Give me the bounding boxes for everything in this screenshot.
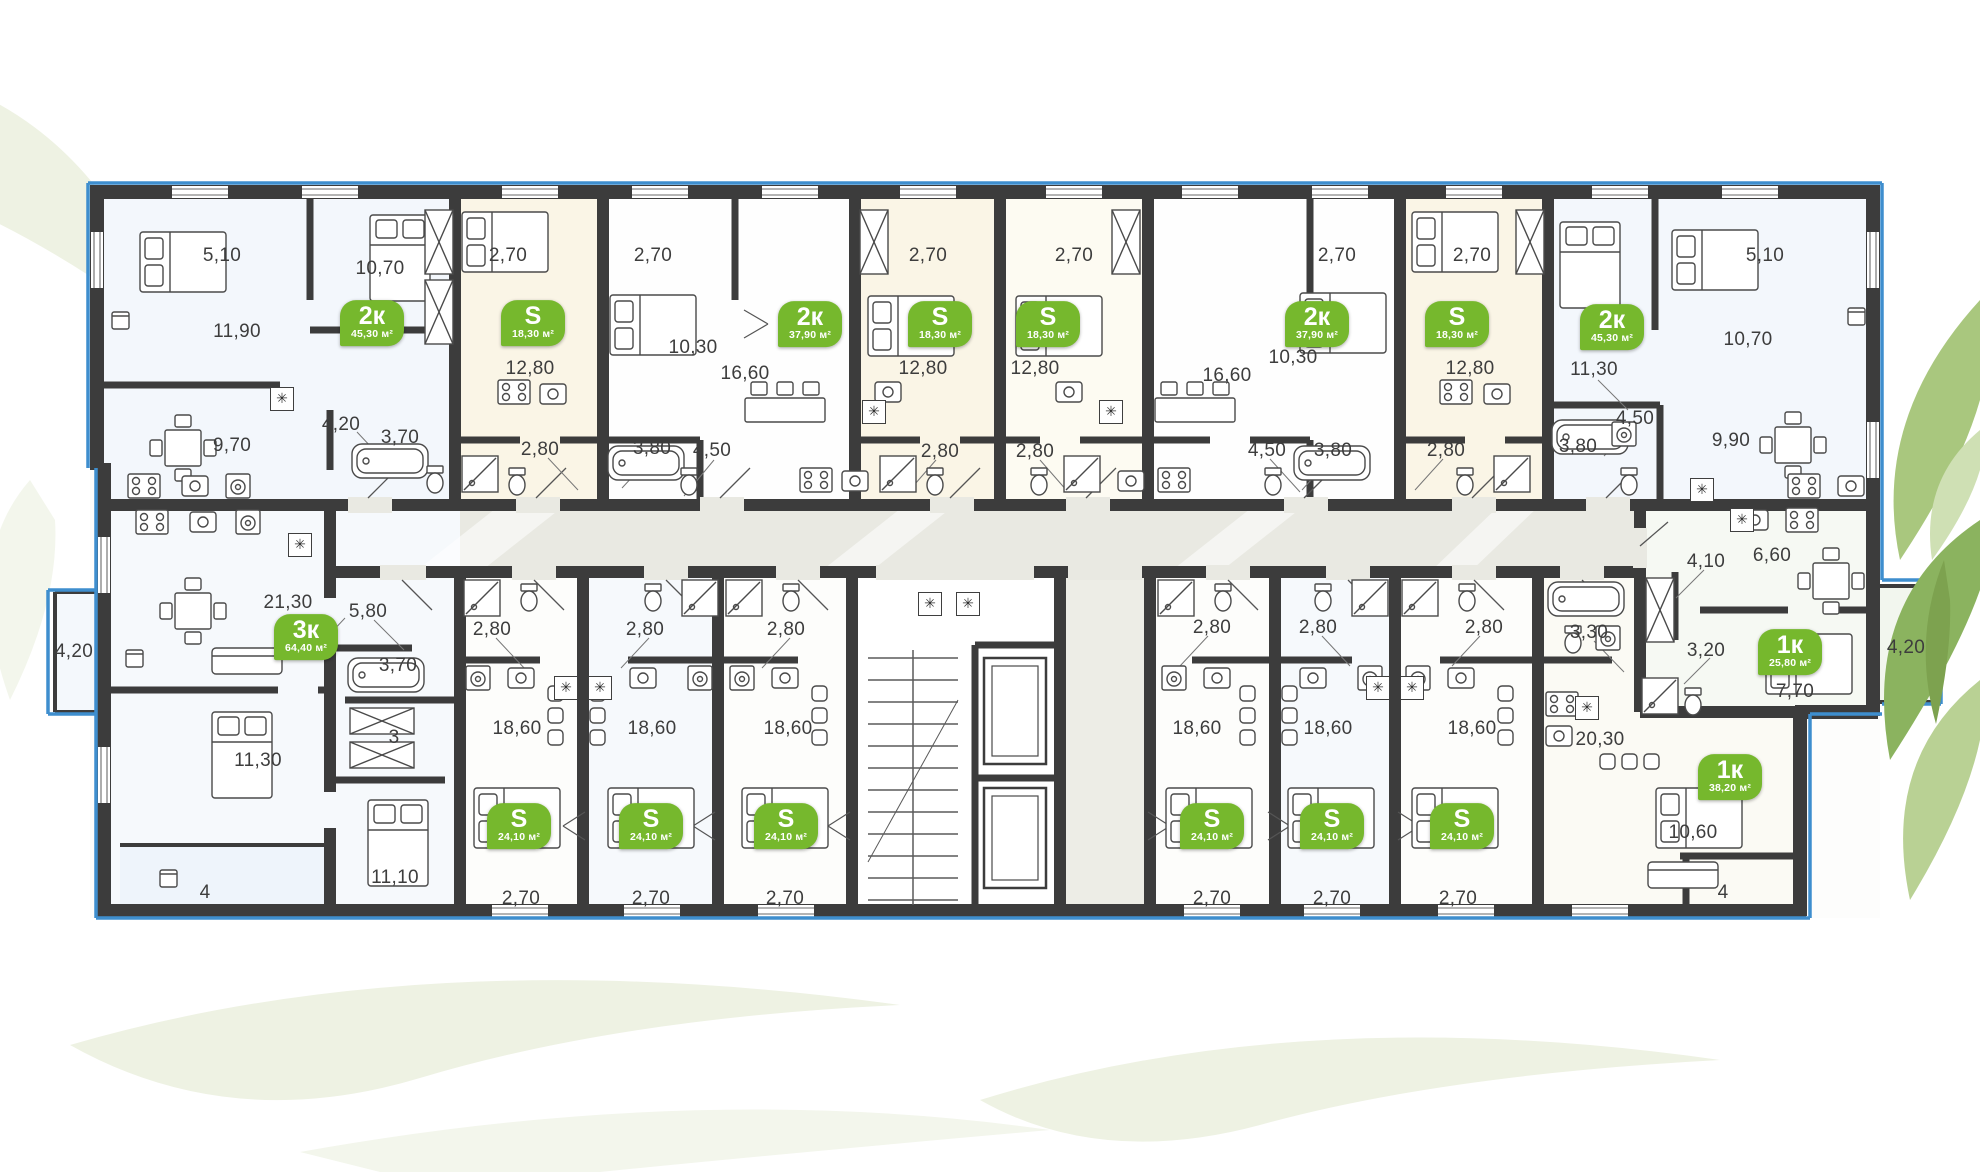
apartment-badge[interactable]: S18,30 м² <box>501 300 565 346</box>
apartment-badge[interactable]: S18,30 м² <box>908 301 972 347</box>
dimension-label: 2,80 <box>1016 441 1054 463</box>
dimension-label: 4,20 <box>322 414 360 436</box>
vent-icon: ✳ <box>588 676 612 700</box>
dimension-label: 3,20 <box>1687 640 1725 662</box>
apartment-area: 37,90 м² <box>1294 330 1340 342</box>
dimension-label: 3,30 <box>1570 622 1608 644</box>
dimension-label: 9,70 <box>213 435 251 457</box>
apartment-area: 24,10 м² <box>1439 832 1485 844</box>
dimension-label: 2,70 <box>1313 888 1351 910</box>
dimension-label: 2,80 <box>767 619 805 641</box>
apartment-type: 1к <box>1707 757 1753 783</box>
apartment-badge[interactable]: 2к45,30 м² <box>1580 304 1644 350</box>
apartment-area: 24,10 м² <box>1309 832 1355 844</box>
dimension-label: 3,80 <box>1314 440 1352 462</box>
dimension-label: 10,30 <box>668 337 717 359</box>
apartment-badge[interactable]: S18,30 м² <box>1016 301 1080 347</box>
apartment-badge[interactable]: 2к37,90 м² <box>778 301 842 347</box>
dimension-label: 2,70 <box>1318 245 1356 267</box>
apartment-badge[interactable]: 2к45,30 м² <box>340 300 404 346</box>
dimension-label: 2,80 <box>521 439 559 461</box>
apartment-type: S <box>763 806 809 832</box>
apartment-type: S <box>917 304 963 330</box>
dimension-label: 18,60 <box>1303 718 1352 740</box>
dimension-label: 2,70 <box>632 888 670 910</box>
apartment-area: 18,30 м² <box>510 329 556 341</box>
dimension-label: 12,80 <box>898 358 947 380</box>
apartment-area: 18,30 м² <box>1025 330 1071 342</box>
plan-labels: 5,1010,7011,909,704,203,702,7012,802,802… <box>0 0 1980 1172</box>
dimension-label: 4,50 <box>1616 408 1654 430</box>
apartment-type: S <box>1434 304 1480 330</box>
dimension-label: 9,90 <box>1712 430 1750 452</box>
dimension-label: 2,70 <box>1055 245 1093 267</box>
apartment-area: 24,10 м² <box>1189 832 1235 844</box>
dimension-label: 18,60 <box>1172 718 1221 740</box>
apartment-type: S <box>496 806 542 832</box>
dimension-label: 11,30 <box>1570 359 1618 381</box>
apartment-type: S <box>1025 304 1071 330</box>
apartment-type: 3к <box>283 617 329 643</box>
dimension-label: 5,10 <box>203 245 241 267</box>
apartment-area: 25,80 м² <box>1767 658 1813 670</box>
vent-icon: ✳ <box>1730 508 1754 532</box>
apartment-area: 18,30 м² <box>917 330 963 342</box>
apartment-area: 24,10 м² <box>628 832 674 844</box>
vent-icon: ✳ <box>1690 478 1714 502</box>
vent-icon: ✳ <box>918 592 942 616</box>
dimension-label: 18,60 <box>1447 718 1496 740</box>
apartment-area: 24,10 м² <box>763 832 809 844</box>
vent-icon: ✳ <box>956 592 980 616</box>
apartment-type: S <box>1309 806 1355 832</box>
apartment-type: S <box>510 303 556 329</box>
vent-icon: ✳ <box>554 676 578 700</box>
dimension-label: 4,20 <box>55 641 93 663</box>
dimension-label: 2,70 <box>909 245 947 267</box>
apartment-type: 2к <box>349 303 395 329</box>
apartment-type: S <box>1439 806 1485 832</box>
apartment-badge[interactable]: 3к64,40 м² <box>274 614 338 660</box>
dimension-label: 3 <box>389 727 400 749</box>
dimension-label: 3,80 <box>1559 436 1597 458</box>
apartment-area: 18,30 м² <box>1434 330 1480 342</box>
dimension-label: 11,90 <box>213 321 261 343</box>
vent-icon: ✳ <box>862 400 886 424</box>
apartment-type: 2к <box>1589 307 1635 333</box>
dimension-label: 2,70 <box>1193 888 1231 910</box>
dimension-label: 2,70 <box>489 245 527 267</box>
dimension-label: 2,80 <box>921 441 959 463</box>
vent-icon: ✳ <box>288 533 312 557</box>
apartment-badge[interactable]: 1к38,20 м² <box>1698 754 1762 800</box>
floor-plan: 5,1010,7011,909,704,203,702,7012,802,802… <box>0 0 1980 1172</box>
apartment-badge[interactable]: S24,10 м² <box>1430 803 1494 849</box>
dimension-label: 11,30 <box>234 750 282 772</box>
dimension-label: 11,10 <box>371 867 419 889</box>
dimension-label: 12,80 <box>1010 358 1059 380</box>
dimension-label: 3,80 <box>633 438 671 460</box>
dimension-label: 3,70 <box>379 655 417 677</box>
dimension-label: 6,60 <box>1753 545 1791 567</box>
apartment-badge[interactable]: 2к37,90 м² <box>1285 301 1349 347</box>
dimension-label: 18,60 <box>627 718 676 740</box>
dimension-label: 5,80 <box>349 601 387 623</box>
dimension-label: 2,80 <box>1427 440 1465 462</box>
dimension-label: 2,80 <box>1299 617 1337 639</box>
dimension-label: 3,70 <box>381 427 419 449</box>
apartment-badge[interactable]: S24,10 м² <box>619 803 683 849</box>
dimension-label: 4,10 <box>1687 551 1725 573</box>
dimension-label: 2,80 <box>473 619 511 641</box>
apartment-badge[interactable]: S24,10 м² <box>1180 803 1244 849</box>
dimension-label: 4,50 <box>693 440 731 462</box>
dimension-label: 5,10 <box>1746 245 1784 267</box>
apartment-area: 45,30 м² <box>349 329 395 341</box>
vent-icon: ✳ <box>1099 400 1123 424</box>
dimension-label: 4 <box>1718 882 1729 904</box>
apartment-type: S <box>1189 806 1235 832</box>
dimension-label: 2,70 <box>634 245 672 267</box>
dimension-label: 21,30 <box>263 592 312 614</box>
apartment-area: 64,40 м² <box>283 643 329 655</box>
dimension-label: 16,60 <box>720 363 769 385</box>
apartment-badge[interactable]: 1к25,80 м² <box>1758 629 1822 675</box>
apartment-badge[interactable]: S24,10 м² <box>754 803 818 849</box>
dimension-label: 2,70 <box>502 888 540 910</box>
apartment-type: 1к <box>1767 632 1813 658</box>
apartment-badge[interactable]: S24,10 м² <box>487 803 551 849</box>
dimension-label: 4,50 <box>1248 440 1286 462</box>
vent-icon: ✳ <box>1575 696 1599 720</box>
dimension-label: 2,80 <box>1465 617 1503 639</box>
apartment-type: S <box>628 806 674 832</box>
vent-icon: ✳ <box>1400 676 1424 700</box>
dimension-label: 10,70 <box>1723 329 1772 351</box>
dimension-label: 4,20 <box>1887 637 1925 659</box>
apartment-badge[interactable]: S18,30 м² <box>1425 301 1489 347</box>
dimension-label: 2,70 <box>1453 245 1491 267</box>
dimension-label: 20,30 <box>1575 729 1624 751</box>
apartment-area: 24,10 м² <box>496 832 542 844</box>
vent-icon: ✳ <box>270 387 294 411</box>
dimension-label: 7,70 <box>1776 681 1814 703</box>
dimension-label: 18,60 <box>492 718 541 740</box>
dimension-label: 4 <box>200 882 211 904</box>
dimension-label: 18,60 <box>763 718 812 740</box>
apartment-type: 2к <box>787 304 833 330</box>
dimension-label: 10,70 <box>355 258 404 280</box>
apartment-area: 45,30 м² <box>1589 333 1635 345</box>
dimension-label: 2,70 <box>766 888 804 910</box>
apartment-type: 2к <box>1294 304 1340 330</box>
dimension-label: 12,80 <box>1445 358 1494 380</box>
dimension-label: 2,80 <box>1193 617 1231 639</box>
dimension-label: 16,60 <box>1202 365 1251 387</box>
apartment-badge[interactable]: S24,10 м² <box>1300 803 1364 849</box>
dimension-label: 12,80 <box>505 358 554 380</box>
vent-icon: ✳ <box>1366 676 1390 700</box>
apartment-area: 38,20 м² <box>1707 783 1753 795</box>
dimension-label: 10,30 <box>1268 347 1317 369</box>
dimension-label: 2,70 <box>1439 888 1477 910</box>
dimension-label: 10,60 <box>1668 822 1717 844</box>
apartment-area: 37,90 м² <box>787 330 833 342</box>
dimension-label: 2,80 <box>626 619 664 641</box>
